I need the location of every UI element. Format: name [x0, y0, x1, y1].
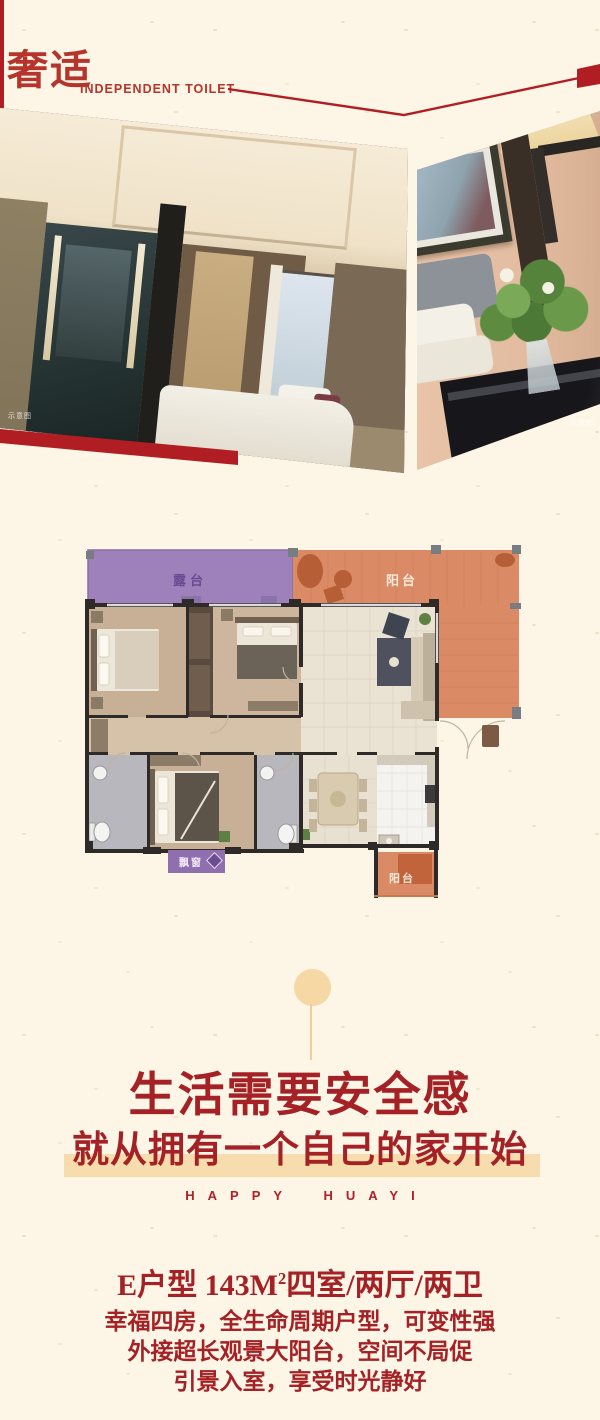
lower-balcony-label: 阳台: [389, 871, 415, 885]
unit-feature-line1: 幸福四房，全生命周期户型，可变性强: [0, 1302, 600, 1336]
unit-headline-superscript: 2: [278, 1269, 286, 1288]
promo-poster: 奢适 INDEPENDENT TOILET 示: [0, 0, 600, 1420]
bay-window-label: 飘窗: [179, 856, 203, 869]
balcony-label: 阳台: [386, 573, 418, 588]
unit-headline-prefix: E户型 143M: [117, 1269, 278, 1302]
unit-feature-line3: 引景入室，享受时光静好: [0, 1362, 600, 1396]
terrace-label: 露台: [173, 573, 207, 588]
bottom-accent-strip: [0, 424, 245, 472]
photo-bedroom-suite-content: [0, 105, 408, 477]
tagline-en: HAPPY HUAYI: [0, 1188, 600, 1203]
floorplan: 露台 阳台: [85, 543, 525, 903]
left-photo-watermark: 示意图: [8, 411, 32, 421]
unit-headline-suffix: 四室/两厅/两卫: [286, 1269, 483, 1302]
unit-feature-line2: 外接超长观景大阳台，空间不局促: [0, 1332, 600, 1366]
photo-bedroom-suite: [0, 105, 408, 477]
header-accent-line: [0, 0, 600, 130]
divider-stem-line: [310, 1004, 312, 1060]
right-photo-watermark: 示意图: [570, 418, 594, 428]
slogan-line2: 就从拥有一个自己的家开始: [0, 1119, 600, 1173]
divider-circle-ornament: [294, 969, 331, 1006]
slogan-line1: 生活需要安全感: [0, 1056, 600, 1125]
unit-headline: E户型 143M2四室/两厅/两卫: [0, 1260, 600, 1304]
